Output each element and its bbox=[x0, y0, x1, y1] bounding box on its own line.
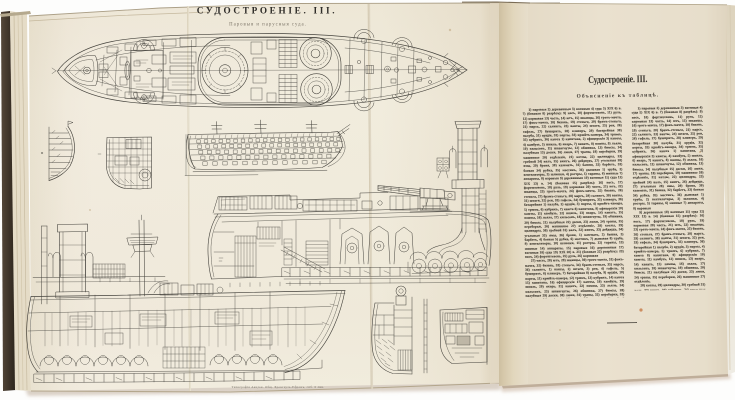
svg-text:Паровыя и парусныя суда.: Паровыя и парусныя суда. bbox=[229, 23, 307, 28]
svg-text:Объясненіе къ таблицѣ.: Объясненіе къ таблицѣ. bbox=[577, 91, 660, 99]
svg-text:СУДОСТРОЕНІЕ. III.: СУДОСТРОЕНІЕ. III. bbox=[197, 6, 338, 16]
svg-text:Судостроеніе. III.: Судостроеніе. III. bbox=[588, 73, 647, 85]
